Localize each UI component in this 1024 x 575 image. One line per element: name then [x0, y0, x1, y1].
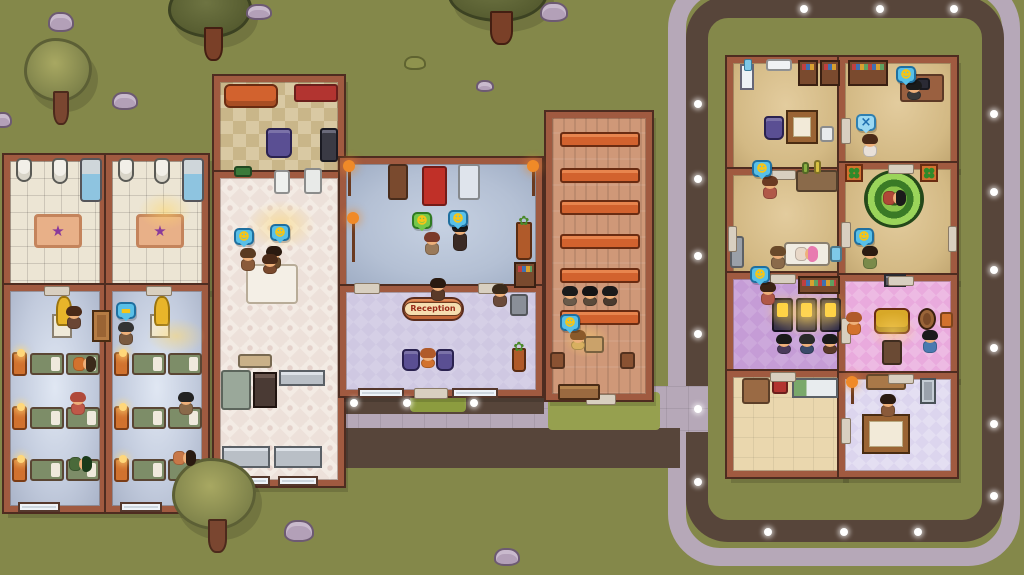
floor-lamp[interactable]: [346, 212, 360, 262]
tree: [448, 0, 548, 22]
window: [278, 476, 318, 486]
rock: [540, 2, 568, 22]
rock: [0, 112, 12, 128]
path-light: [990, 344, 998, 352]
blocked-student-hair: [862, 134, 878, 144]
kitchen-counter[interactable]: [221, 370, 251, 410]
emote-face-icon: ▬: [121, 304, 131, 317]
door: [841, 118, 851, 144]
wall-lamp[interactable]: [342, 160, 356, 196]
armchair[interactable]: [882, 340, 902, 365]
bed[interactable]: [132, 353, 166, 375]
emote-bubble-smile-icon: ☻: [234, 228, 254, 245]
study-girl[interactable]: [760, 282, 776, 306]
path-light: [914, 528, 922, 536]
mushroom-lamp[interactable]: [845, 376, 859, 404]
hall-student-hair: [570, 330, 586, 340]
lobby-guest-hair: [424, 232, 440, 242]
receptionist[interactable]: [430, 278, 446, 302]
path-light: [876, 5, 884, 13]
window: [358, 388, 404, 398]
wall-lamp[interactable]: [526, 160, 540, 196]
shower-stall[interactable]: [182, 158, 204, 202]
sofa[interactable]: [224, 84, 278, 108]
emote-face-icon: ☻: [754, 268, 765, 281]
blocked-student[interactable]: [862, 134, 878, 158]
desk-worker[interactable]: [906, 80, 922, 100]
toilet[interactable]: [16, 158, 32, 182]
water-jug[interactable]: [830, 246, 842, 262]
chair-small[interactable]: [620, 352, 635, 369]
shelf[interactable]: [848, 60, 888, 86]
study-table[interactable]: [584, 336, 604, 353]
gold-statue[interactable]: [150, 296, 170, 338]
bottle[interactable]: [814, 160, 821, 174]
tree: [168, 0, 252, 38]
dorm-girl-hair: [70, 392, 86, 402]
water-cooler[interactable]: [740, 64, 754, 90]
door: [841, 418, 851, 444]
bookshelf[interactable]: [820, 60, 840, 86]
nightstand[interactable]: [12, 406, 27, 430]
toilet[interactable]: [118, 158, 134, 182]
bed[interactable]: [132, 459, 166, 481]
dorm-girl[interactable]: [70, 392, 86, 416]
waiting-chair[interactable]: [436, 349, 454, 371]
nightstand[interactable]: [114, 352, 129, 376]
path-light: [950, 5, 958, 13]
kitchen-hall[interactable]: [214, 172, 344, 486]
door: [888, 164, 914, 174]
massage-patient[interactable]: [794, 246, 818, 262]
study-student[interactable]: [822, 334, 838, 354]
office-visitor-hair: [762, 176, 778, 186]
emote-bubble-item-icon: ▬: [116, 302, 136, 319]
shower-stall[interactable]: [80, 158, 102, 202]
path-light: [840, 528, 848, 536]
copier[interactable]: [510, 294, 528, 316]
plant-glyph: ✿: [519, 215, 530, 228]
drafter-hair: [880, 394, 896, 404]
emote-face-icon: ☻: [452, 212, 463, 225]
door: [146, 286, 172, 296]
tree: [24, 38, 92, 102]
lounge-smiler[interactable]: [862, 246, 878, 270]
dorm-walker[interactable]: [178, 392, 194, 416]
path-light: [694, 330, 702, 338]
emote-face-icon: ☻: [274, 226, 285, 239]
star-rug[interactable]: ★: [34, 214, 82, 248]
rock: [404, 56, 426, 70]
study-student-hair: [822, 334, 838, 344]
pew-bench[interactable]: [560, 234, 640, 249]
lobby-guest[interactable]: [424, 232, 440, 256]
door: [728, 226, 737, 252]
path-light: [990, 188, 998, 196]
nightstand[interactable]: [12, 352, 27, 376]
path-light: [800, 5, 808, 13]
diner[interactable]: [262, 254, 278, 274]
emote-bubble-smile-icon: ☻: [752, 160, 772, 177]
study-machine[interactable]: [820, 298, 841, 332]
window: [18, 502, 60, 512]
plant-glyph: ✿: [514, 341, 525, 354]
chair-small[interactable]: [550, 352, 565, 369]
path-light: [694, 100, 702, 108]
toilet[interactable]: [52, 158, 68, 184]
door: [44, 286, 70, 296]
gold-sofa[interactable]: [874, 308, 910, 334]
emote-bubble-smile-icon: ☻: [270, 224, 290, 241]
emote-bubble-laughg-icon: ☻: [412, 212, 432, 229]
path-light: [470, 399, 478, 407]
pew-bench[interactable]: [560, 132, 640, 147]
pew-bench[interactable]: [560, 168, 640, 183]
emote-face-icon: ☻: [564, 316, 575, 329]
pink-stander-hair: [922, 330, 938, 340]
office-chair[interactable]: [764, 116, 784, 140]
pew-sitter[interactable]: [582, 286, 598, 306]
vending-machine[interactable]: [320, 128, 338, 162]
sleeping-resident[interactable]: [172, 450, 196, 466]
waiting-chair[interactable]: [402, 349, 420, 371]
emote-bubble-smile-icon: ☻: [560, 314, 580, 331]
utility-visitor-hair: [770, 246, 786, 256]
rock: [246, 4, 272, 20]
blocked-icon-bubble: ×: [856, 114, 876, 131]
rock: [494, 548, 520, 566]
emote-face-icon: ☻: [858, 230, 869, 243]
diner-hair: [240, 248, 256, 258]
outdoor-bench[interactable]: [558, 384, 600, 400]
kitchen-counter[interactable]: [279, 370, 325, 386]
dot-cabinet[interactable]: [845, 164, 863, 182]
dorm-walker[interactable]: [118, 322, 134, 346]
study-girl-hair: [760, 282, 776, 292]
hall-student[interactable]: [570, 330, 586, 350]
door: [841, 222, 851, 248]
path-light: [694, 175, 702, 183]
stove[interactable]: [253, 372, 277, 408]
barrel[interactable]: [918, 308, 936, 330]
door: [888, 276, 914, 286]
sleeping-resident[interactable]: [68, 456, 92, 472]
door: [888, 374, 914, 384]
nightstand[interactable]: [114, 458, 129, 482]
vending-machine[interactable]: [458, 164, 480, 200]
pew-sitter[interactable]: [562, 286, 578, 306]
dorm-resident-hair: [66, 306, 82, 316]
office-visitor[interactable]: [762, 176, 778, 200]
path-light: [990, 492, 998, 500]
diner[interactable]: [240, 248, 256, 272]
rock: [284, 520, 314, 542]
door: [770, 372, 796, 382]
massage-patient-hair: [808, 246, 818, 262]
crates[interactable]: [92, 310, 111, 342]
path-light: [694, 405, 702, 413]
bed[interactable]: [30, 407, 64, 429]
emote-bubble-smile-icon: ☻: [854, 228, 874, 245]
path-light: [764, 528, 772, 536]
pew-bench[interactable]: [560, 268, 640, 283]
wall-cabinet[interactable]: [798, 276, 840, 294]
star-rug-glyph: ★: [51, 224, 64, 239]
dot-cabinet[interactable]: [920, 164, 938, 182]
lounge-smiler-hair: [862, 246, 878, 256]
nightstand[interactable]: [12, 458, 27, 482]
study-student[interactable]: [776, 334, 792, 354]
pink-lounger[interactable]: [846, 312, 862, 336]
drafter[interactable]: [880, 394, 896, 418]
waiting-guest[interactable]: [420, 348, 436, 368]
counter[interactable]: [792, 378, 838, 398]
bed[interactable]: [30, 459, 64, 481]
study-student-hair: [776, 334, 792, 344]
sleeping-resident-hair: [82, 456, 92, 472]
bed[interactable]: [168, 353, 202, 375]
nightstand[interactable]: [114, 406, 129, 430]
door: [948, 226, 957, 252]
steel-table[interactable]: [274, 446, 322, 468]
emote-face-icon: ☻: [900, 68, 911, 81]
office-desk[interactable]: [786, 110, 818, 144]
printer[interactable]: [820, 126, 834, 142]
waiting-guest-hair: [420, 348, 436, 358]
lobby-monk-body: [453, 233, 467, 251]
staff-member-hair: [492, 284, 508, 294]
sleeping-resident[interactable]: [72, 356, 96, 372]
path-light: [990, 110, 998, 118]
drafting-table[interactable]: [862, 414, 910, 454]
pink-stander[interactable]: [922, 330, 938, 354]
diner-hair: [262, 254, 278, 264]
study-student-hair: [799, 334, 815, 344]
pew-sitter-hair: [582, 286, 598, 296]
vending-machine-red[interactable]: [422, 166, 447, 206]
pew-bench[interactable]: [560, 200, 640, 215]
emote-bubble-smile-icon: ☻: [448, 210, 468, 227]
locker[interactable]: [920, 378, 936, 404]
rock: [112, 92, 138, 110]
vending-cabinet[interactable]: [388, 164, 408, 200]
emote-face-icon: ×: [861, 115, 872, 130]
path-light: [694, 478, 702, 486]
pink-lounger-hair: [846, 312, 862, 322]
star-rug-glyph: ★: [153, 224, 166, 239]
dorm-resident[interactable]: [66, 306, 82, 330]
bookshelf[interactable]: [798, 60, 818, 86]
plant[interactable]: ✿: [512, 348, 526, 372]
wall-sign[interactable]: [234, 166, 252, 177]
utility-visitor[interactable]: [770, 246, 786, 270]
staff-member[interactable]: [492, 284, 508, 308]
wall-box[interactable]: [940, 312, 953, 328]
path-light: [990, 266, 998, 274]
bed[interactable]: [30, 353, 64, 375]
toilet[interactable]: [154, 158, 170, 184]
red-counter[interactable]: [294, 84, 338, 102]
rock: [476, 80, 494, 92]
dorm-walker-hair: [178, 392, 194, 402]
dorm-walker-hair: [118, 322, 134, 332]
emote-face-icon: ☻: [416, 214, 427, 227]
sleeping-resident-hair: [86, 356, 96, 372]
bottle[interactable]: [802, 162, 809, 174]
receptionist-hair: [430, 278, 446, 288]
window: [452, 388, 498, 398]
rug-relaxer[interactable]: [882, 190, 906, 206]
emote-bubble-smile-icon: ☻: [750, 266, 770, 283]
emote-face-icon: ☻: [756, 162, 767, 175]
star-rug[interactable]: ★: [136, 214, 184, 248]
pew-sitter[interactable]: [602, 286, 618, 306]
pew-sitter-hair: [602, 286, 618, 296]
massage-chair[interactable]: [266, 128, 292, 158]
walkway-dirt: [338, 428, 680, 468]
kitchen-hood[interactable]: [238, 354, 272, 368]
fridge[interactable]: [304, 168, 322, 194]
emote-bubble-smile-icon: ☻: [896, 66, 916, 83]
fridge[interactable]: [274, 170, 290, 194]
door: [354, 283, 380, 294]
pew-sitter-hair: [562, 286, 578, 296]
path-light: [694, 252, 702, 260]
rock: [48, 12, 74, 32]
dresser[interactable]: [742, 378, 770, 404]
whiteboard[interactable]: [766, 59, 792, 71]
reception-desk-label: Reception: [404, 302, 461, 316]
study-student[interactable]: [799, 334, 815, 354]
path-light: [403, 399, 411, 407]
rug-relaxer-hair: [896, 190, 906, 206]
game-viewport: ★★✿Reception✿▬☻☻☻☻☻☻×☻☻☻: [0, 0, 1024, 575]
door: [414, 388, 448, 399]
emote-face-icon: ☻: [238, 230, 249, 243]
tree: [172, 458, 256, 530]
path-light: [990, 420, 998, 428]
window: [120, 502, 162, 512]
sleeping-resident-hair: [186, 450, 196, 466]
study-machine[interactable]: [796, 298, 817, 332]
shelf[interactable]: [514, 262, 536, 288]
plant[interactable]: ✿: [516, 222, 532, 260]
bed[interactable]: [132, 407, 166, 429]
path-light: [350, 399, 358, 407]
